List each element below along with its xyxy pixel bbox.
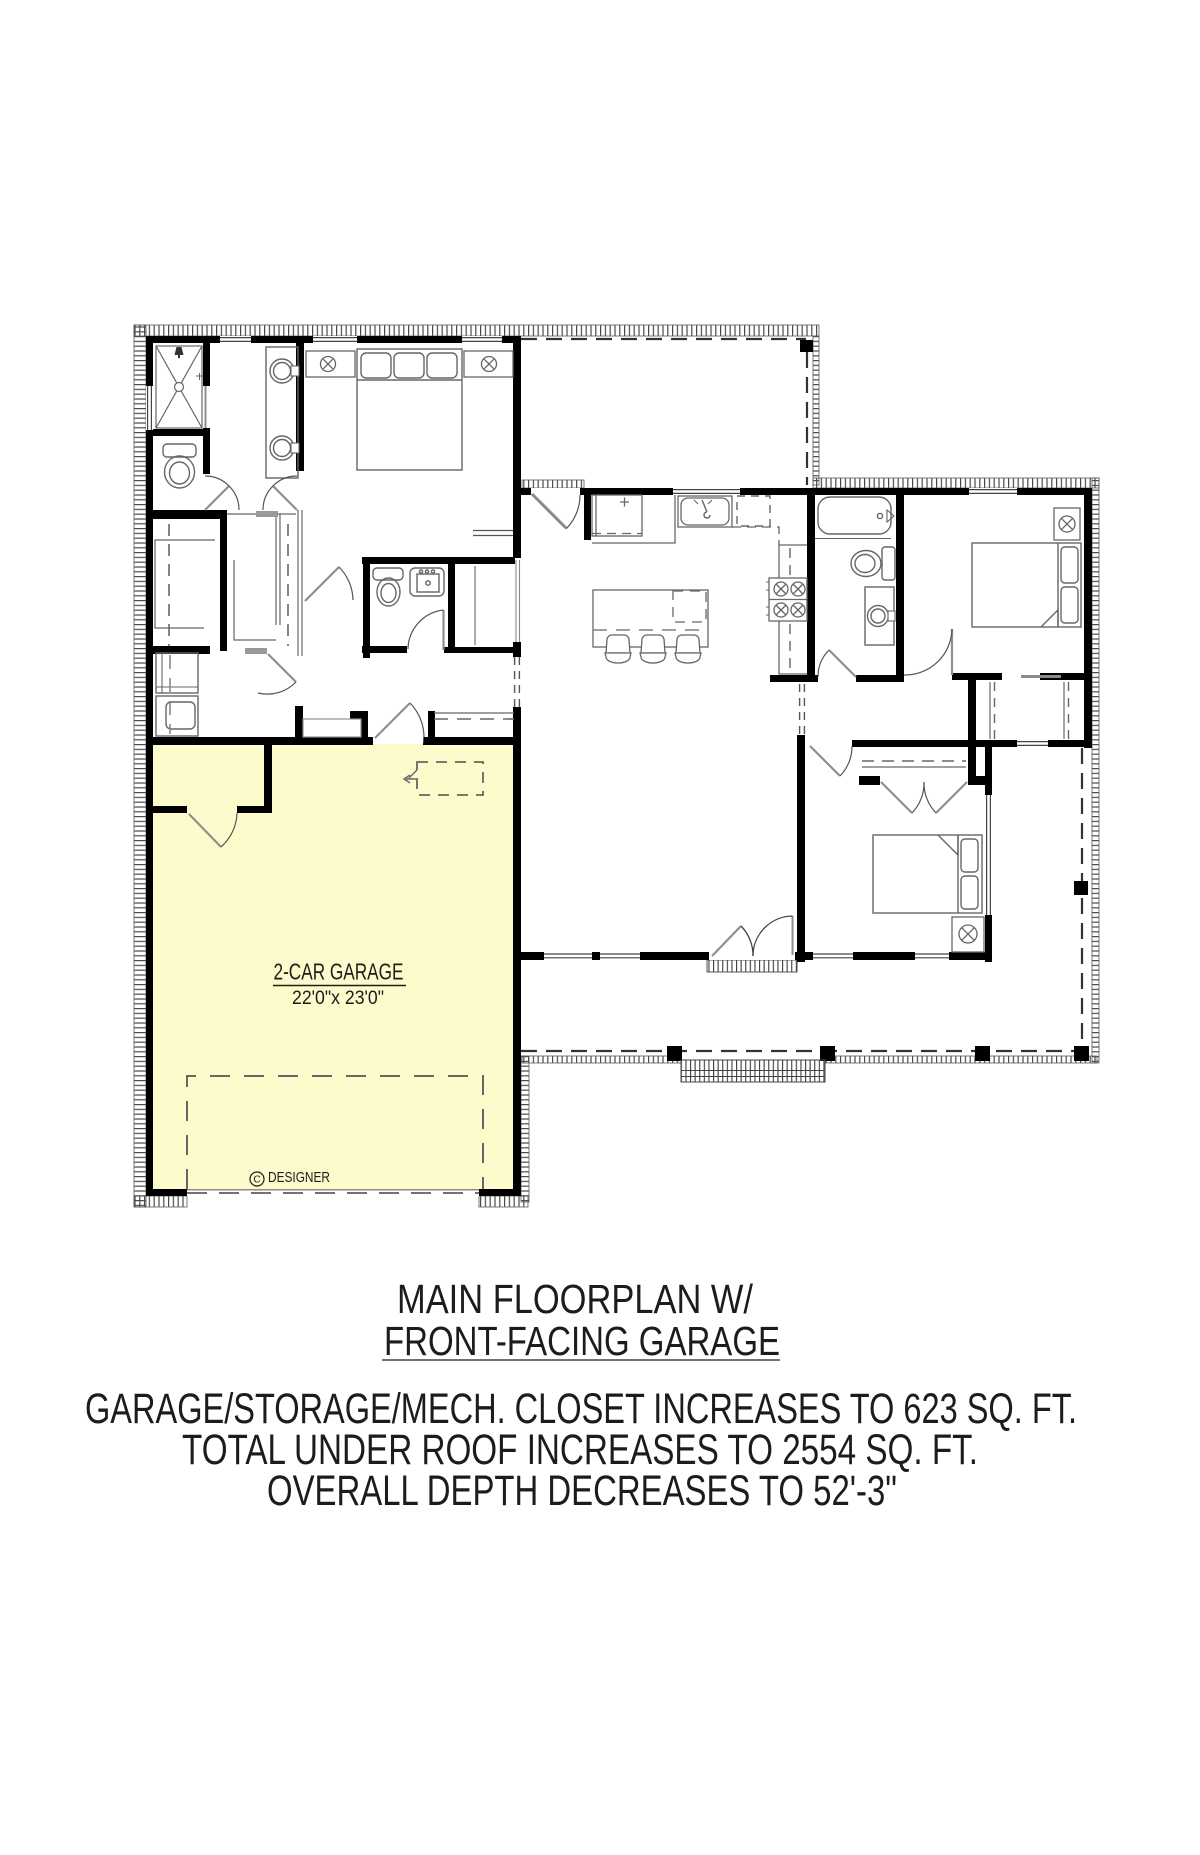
svg-text:2-CAR GARAGE: 2-CAR GARAGE [274,959,404,985]
svg-text:22'0"x 23'0": 22'0"x 23'0" [292,988,384,1009]
svg-text:DESIGNER: DESIGNER [268,1170,330,1186]
svg-text:FRONT-FACING GARAGE: FRONT-FACING GARAGE [384,1318,780,1364]
svg-text:C: C [253,1175,260,1186]
svg-text:OVERALL DEPTH DECREASES TO 52': OVERALL DEPTH DECREASES TO 52'-3" [267,1467,897,1515]
svg-text:MAIN FLOORPLAN W/: MAIN FLOORPLAN W/ [397,1276,754,1322]
